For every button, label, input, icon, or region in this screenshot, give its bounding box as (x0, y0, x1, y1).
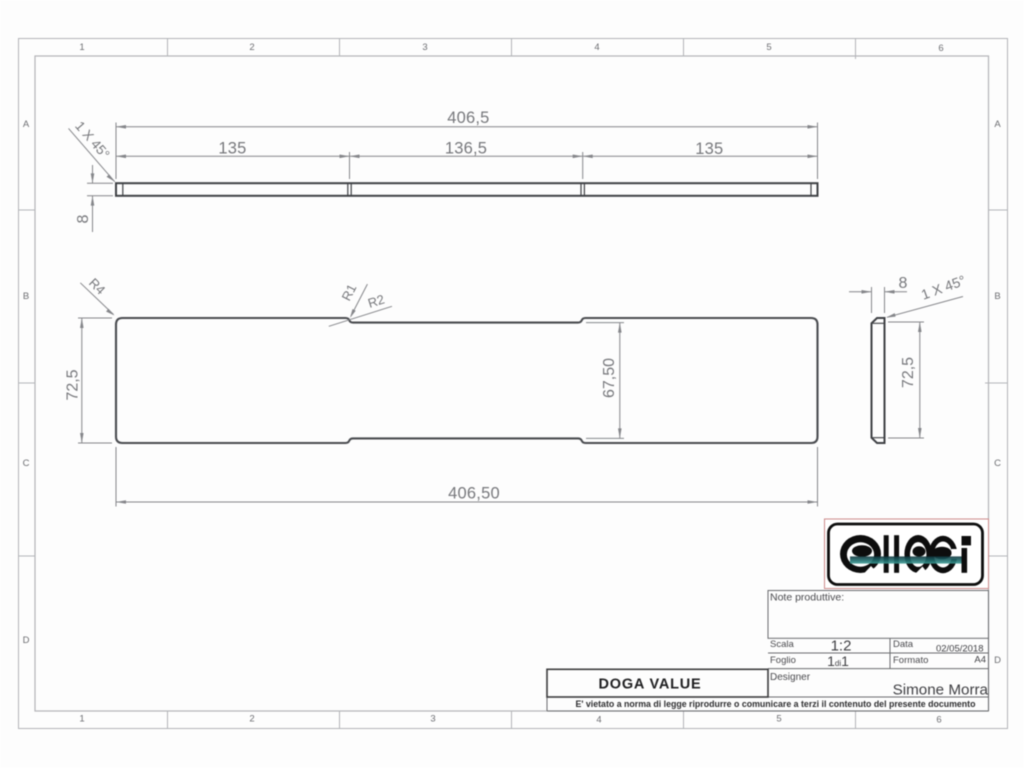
svg-text:3: 3 (430, 714, 435, 725)
svg-text:3: 3 (422, 42, 427, 53)
svg-text:C: C (23, 458, 30, 469)
svg-text:DOGA VALUE: DOGA VALUE (598, 677, 701, 693)
svg-text:2: 2 (249, 42, 254, 53)
svg-text:Note produttive:: Note produttive: (770, 592, 844, 604)
svg-text:Scala: Scala (770, 639, 794, 650)
svg-text:E' vietato a norma di legge ri: E' vietato a norma di legge riprodurre o… (576, 699, 977, 709)
svg-text:72,5: 72,5 (900, 357, 917, 388)
svg-text:67,50: 67,50 (601, 358, 618, 398)
svg-text:136,5: 136,5 (445, 140, 487, 158)
svg-text:Foglio: Foglio (770, 655, 796, 666)
svg-text:1: 1 (79, 42, 84, 53)
svg-text:72,5: 72,5 (65, 369, 82, 400)
svg-text:02/05/2018: 02/05/2018 (936, 644, 984, 655)
svg-text:Data: Data (893, 639, 914, 650)
svg-text:A4: A4 (974, 655, 986, 666)
svg-text:406,50: 406,50 (448, 484, 500, 502)
svg-text:5: 5 (766, 42, 771, 53)
svg-text:4: 4 (594, 42, 599, 53)
svg-text:6: 6 (938, 43, 943, 54)
svg-text:B: B (23, 291, 29, 302)
svg-text:A: A (23, 119, 30, 130)
svg-text:6: 6 (936, 715, 941, 726)
svg-text:8: 8 (899, 275, 908, 292)
svg-text:135: 135 (695, 140, 723, 158)
svg-text:D: D (994, 655, 1001, 666)
svg-text:1:2: 1:2 (831, 638, 852, 655)
svg-text:4: 4 (596, 715, 601, 726)
svg-text:Simone Morra: Simone Morra (893, 682, 989, 699)
svg-text:8: 8 (75, 214, 92, 223)
svg-text:135: 135 (218, 140, 246, 158)
svg-text:C: C (994, 458, 1001, 469)
svg-text:A: A (994, 119, 1001, 130)
svg-text:Designer: Designer (770, 672, 811, 683)
svg-text:406,5: 406,5 (447, 109, 489, 127)
svg-text:Formato: Formato (893, 655, 928, 666)
svg-text:B: B (994, 291, 1000, 302)
svg-text:D: D (23, 635, 30, 646)
svg-text:2: 2 (249, 714, 254, 725)
svg-text:5: 5 (776, 714, 781, 725)
svg-text:1: 1 (79, 714, 84, 725)
